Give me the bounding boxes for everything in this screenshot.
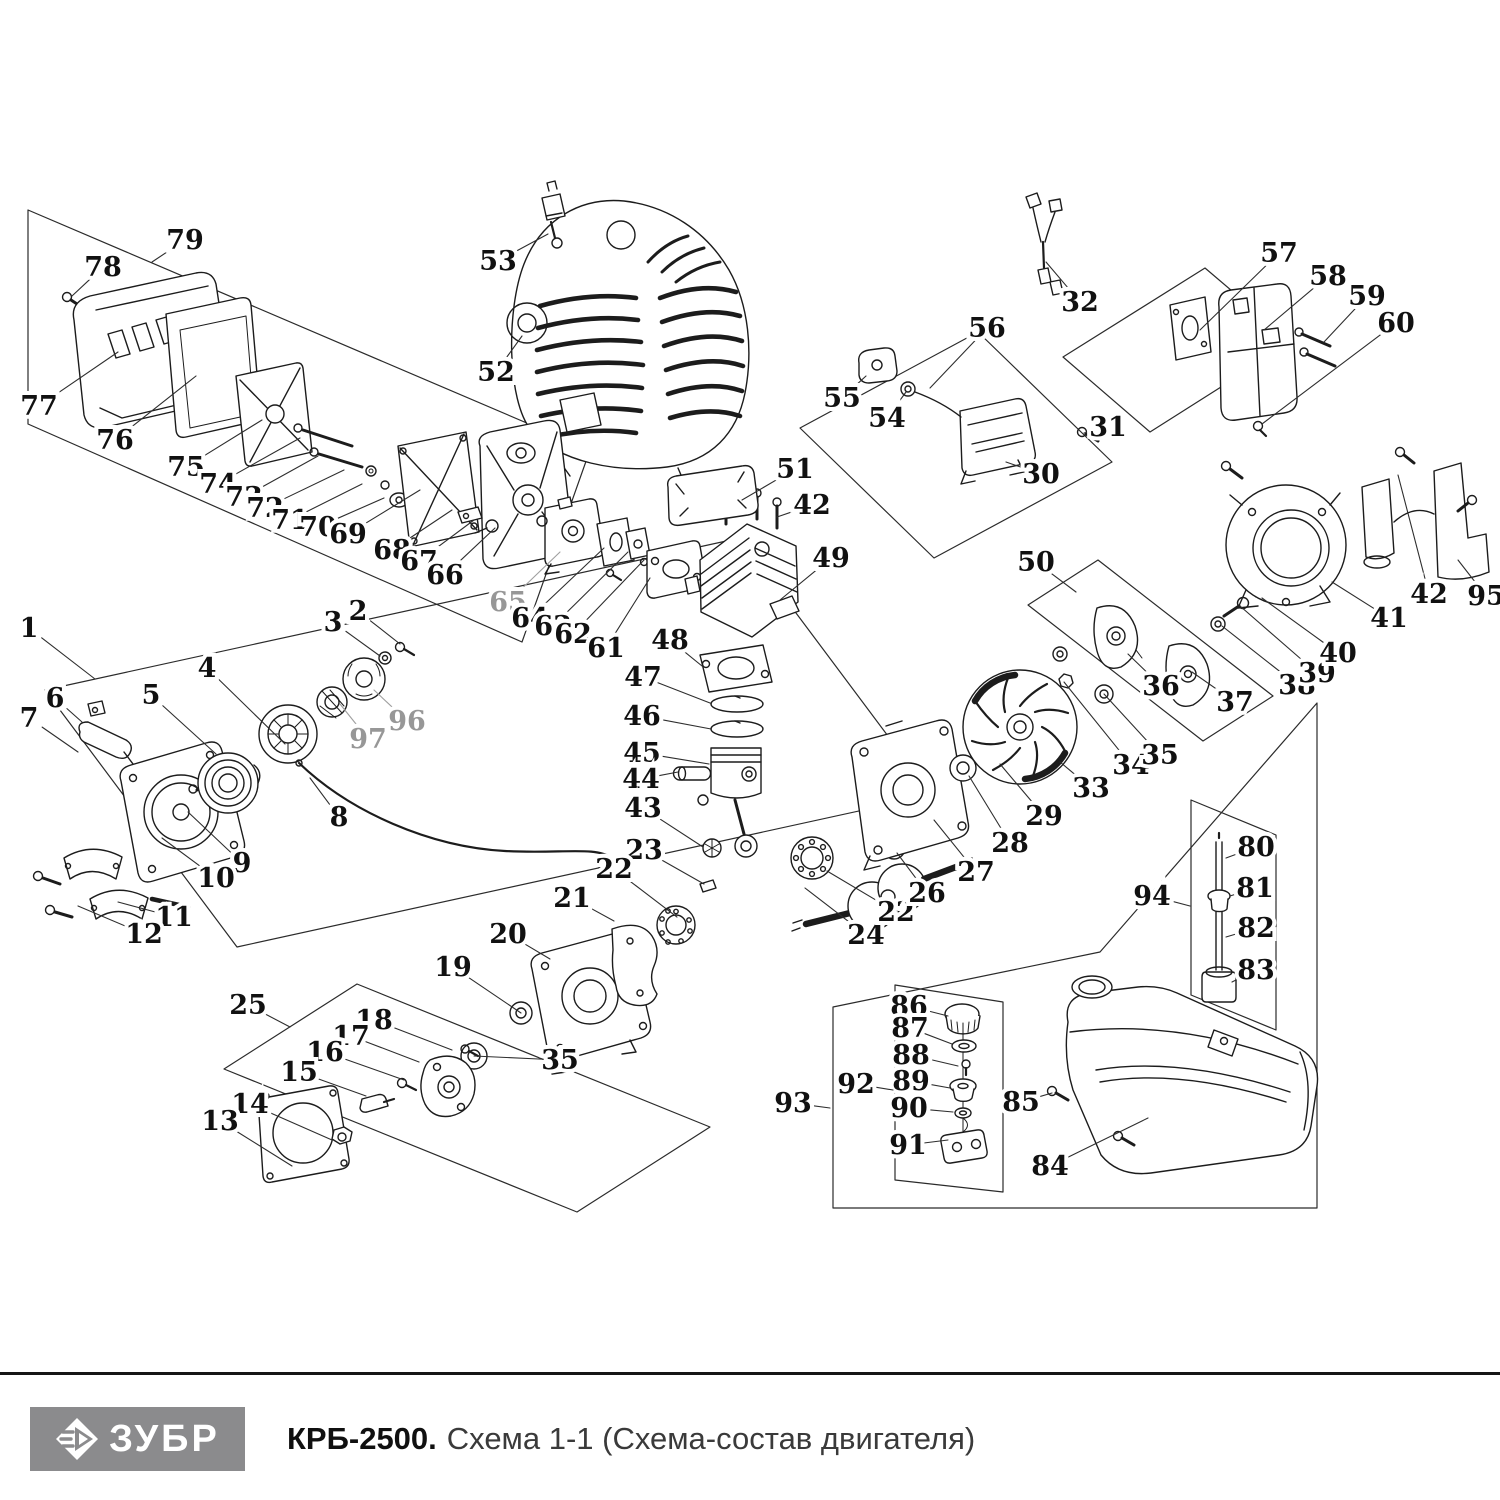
- box-ignition-group: [800, 332, 1112, 558]
- part-label-46: 46: [623, 701, 661, 732]
- part-label-33: 33: [1072, 773, 1110, 804]
- part-label-94: 94: [1133, 881, 1171, 912]
- part-label-43: 43: [624, 793, 662, 824]
- part-label-92: 92: [837, 1069, 875, 1100]
- air-filter-fasteners-drawing: [294, 424, 408, 507]
- part-label-13: 13: [201, 1106, 239, 1137]
- leader-line-61: [615, 578, 650, 634]
- part-label-77: 77: [20, 391, 58, 422]
- model-title: КРБ-2500.: [287, 1421, 437, 1457]
- leader-line-19: [466, 976, 521, 1013]
- part-label-61: 61: [587, 633, 625, 664]
- leader-line-93: [809, 1105, 830, 1108]
- brand-text: ЗУБР: [109, 1420, 220, 1458]
- leader-line-1: [42, 638, 95, 679]
- part-label-60: 60: [1377, 308, 1415, 339]
- part-label-22: 22: [595, 854, 633, 885]
- part-label-21: 21: [553, 883, 591, 914]
- part-label-93: 93: [774, 1088, 812, 1119]
- part-label-40: 40: [1319, 638, 1357, 669]
- part-label-27: 27: [957, 857, 995, 888]
- part-label-78: 78: [84, 252, 122, 283]
- part-label-69: 69: [329, 519, 367, 550]
- part-label-35: 35: [541, 1045, 579, 1076]
- part-label-97: 97: [349, 724, 387, 755]
- part-label-30: 30: [1022, 459, 1060, 490]
- part-label-42: 42: [793, 490, 831, 521]
- part-label-80: 80: [1237, 832, 1275, 863]
- air-filter-frame-drawing: [236, 363, 312, 466]
- part-label-76: 76: [96, 425, 134, 456]
- part-label-35: 35: [1141, 740, 1179, 771]
- title-bar: КРБ-2500. Схема 1-1 (Схема-состав двигат…: [287, 1407, 975, 1471]
- part-label-82: 82: [1237, 913, 1275, 944]
- leader-line-72: [279, 470, 344, 501]
- part-label-26: 26: [908, 878, 946, 909]
- part-label-5: 5: [142, 680, 161, 711]
- leader-line-7: [42, 727, 78, 752]
- part-label-57: 57: [1260, 238, 1298, 269]
- fuel-cap-parts-drawing: [941, 1004, 987, 1163]
- part-label-96: 96: [388, 706, 426, 737]
- part-label-90: 90: [890, 1093, 928, 1124]
- leader-line-43: [656, 817, 703, 847]
- leader-line-28: [969, 776, 1002, 829]
- part-label-25: 25: [229, 990, 267, 1021]
- leader-line-59: [1324, 308, 1356, 342]
- part-label-12: 12: [125, 919, 163, 950]
- part-label-29: 29: [1025, 801, 1063, 832]
- piston-drawing: [674, 748, 762, 857]
- part-label-28: 28: [991, 828, 1029, 859]
- footer-rule: [0, 1372, 1500, 1375]
- part-label-91: 91: [889, 1130, 927, 1161]
- part-label-10: 10: [197, 863, 235, 894]
- part-label-56: 56: [968, 313, 1006, 344]
- leader-line-38: [1222, 626, 1284, 675]
- part-label-19: 19: [434, 952, 472, 983]
- leader-line-39: [1240, 606, 1305, 662]
- muffler-drawing: [1170, 284, 1335, 436]
- part-label-55: 55: [823, 383, 861, 414]
- leader-line-47: [658, 683, 710, 703]
- leader-line-71: [304, 484, 362, 513]
- schematic-page: 7978777675747372717069686766656463626153…: [0, 0, 1500, 1500]
- starter-handle-drawing: [79, 701, 136, 768]
- part-label-50: 50: [1017, 547, 1055, 578]
- part-label-6: 6: [46, 683, 65, 714]
- part-label-31: 31: [1089, 412, 1127, 443]
- part-label-54: 54: [868, 403, 906, 434]
- leader-line-46: [658, 719, 711, 729]
- part-label-81: 81: [1236, 873, 1274, 904]
- part-label-85: 85: [1002, 1087, 1040, 1118]
- part-label-51: 51: [776, 454, 814, 485]
- leader-line-23: [658, 858, 704, 884]
- fan-cover-drawing: [1222, 462, 1347, 609]
- part-label-41: 41: [1370, 603, 1408, 634]
- leader-line-62: [584, 560, 644, 622]
- leader-line-5: [163, 706, 216, 754]
- flywheel-drawing: [963, 670, 1077, 784]
- starter-spring-drawing: [198, 753, 260, 813]
- leader-line-6: [67, 709, 82, 722]
- leader-line-92: [872, 1087, 893, 1090]
- part-label-83: 83: [1237, 955, 1275, 986]
- part-label-8: 8: [330, 802, 349, 833]
- part-label-9: 9: [233, 848, 252, 879]
- part-label-44: 44: [622, 764, 660, 795]
- cylinder-gasket-drawing: [700, 645, 772, 692]
- leader-line-3: [346, 631, 380, 656]
- piston-rings-drawing: [711, 696, 763, 737]
- leader-line-41: [1332, 582, 1375, 609]
- fuel-tank-drawing: [1048, 976, 1318, 1174]
- leader-line-94: [1167, 900, 1190, 906]
- cover-plate-drawing: [668, 466, 758, 526]
- leader-line-22: [627, 879, 677, 917]
- part-label-66: 66: [426, 560, 464, 591]
- part-label-53: 53: [479, 246, 517, 277]
- part-label-1: 1: [20, 613, 39, 644]
- leader-line-2: [371, 621, 400, 644]
- part-label-32: 32: [1061, 287, 1099, 318]
- fuel-line-drawing: [1202, 833, 1236, 1002]
- part-label-37: 37: [1216, 687, 1254, 718]
- leader-line-56: [930, 340, 976, 388]
- leader-line-16: [340, 1057, 404, 1080]
- part-label-95: 95: [1467, 581, 1500, 612]
- part-label-15: 15: [280, 1057, 318, 1088]
- exploded-diagram: 7978777675747372717069686766656463626153…: [0, 0, 1500, 1500]
- part-label-58: 58: [1309, 261, 1347, 292]
- leader-line-45: [658, 756, 709, 764]
- part-label-36: 36: [1142, 671, 1180, 702]
- wire-harness-drawing: [1026, 193, 1063, 295]
- part-label-84: 84: [1031, 1151, 1069, 1182]
- leader-line-42: [1398, 475, 1425, 579]
- zubr-logo: ЗУБР: [30, 1407, 245, 1471]
- part-label-7: 7: [20, 703, 39, 734]
- part-label-4: 4: [198, 653, 217, 684]
- part-label-3: 3: [324, 607, 343, 638]
- leader-line-88: [927, 1059, 958, 1066]
- part-label-48: 48: [651, 625, 689, 656]
- leader-line-89: [927, 1084, 950, 1088]
- part-label-62: 62: [554, 619, 592, 650]
- part-label-47: 47: [624, 662, 662, 693]
- zubr-logo-mark: [55, 1417, 99, 1461]
- part-label-42: 42: [1410, 579, 1448, 610]
- leader-line-17: [366, 1042, 419, 1062]
- part-label-79: 79: [166, 225, 204, 256]
- leader-line-18: [389, 1026, 452, 1050]
- leader-line-90: [925, 1109, 953, 1112]
- starter-reel-drawing: [259, 705, 317, 763]
- part-label-49: 49: [812, 543, 850, 574]
- engine-bracket-drawing: [1362, 448, 1489, 580]
- part-label-20: 20: [489, 919, 527, 950]
- schema-subtitle: Схема 1-1 (Схема-состав двигателя): [447, 1421, 975, 1457]
- part-label-52: 52: [477, 357, 515, 388]
- carburetor-drawing: [537, 497, 604, 574]
- part-label-2: 2: [349, 596, 368, 627]
